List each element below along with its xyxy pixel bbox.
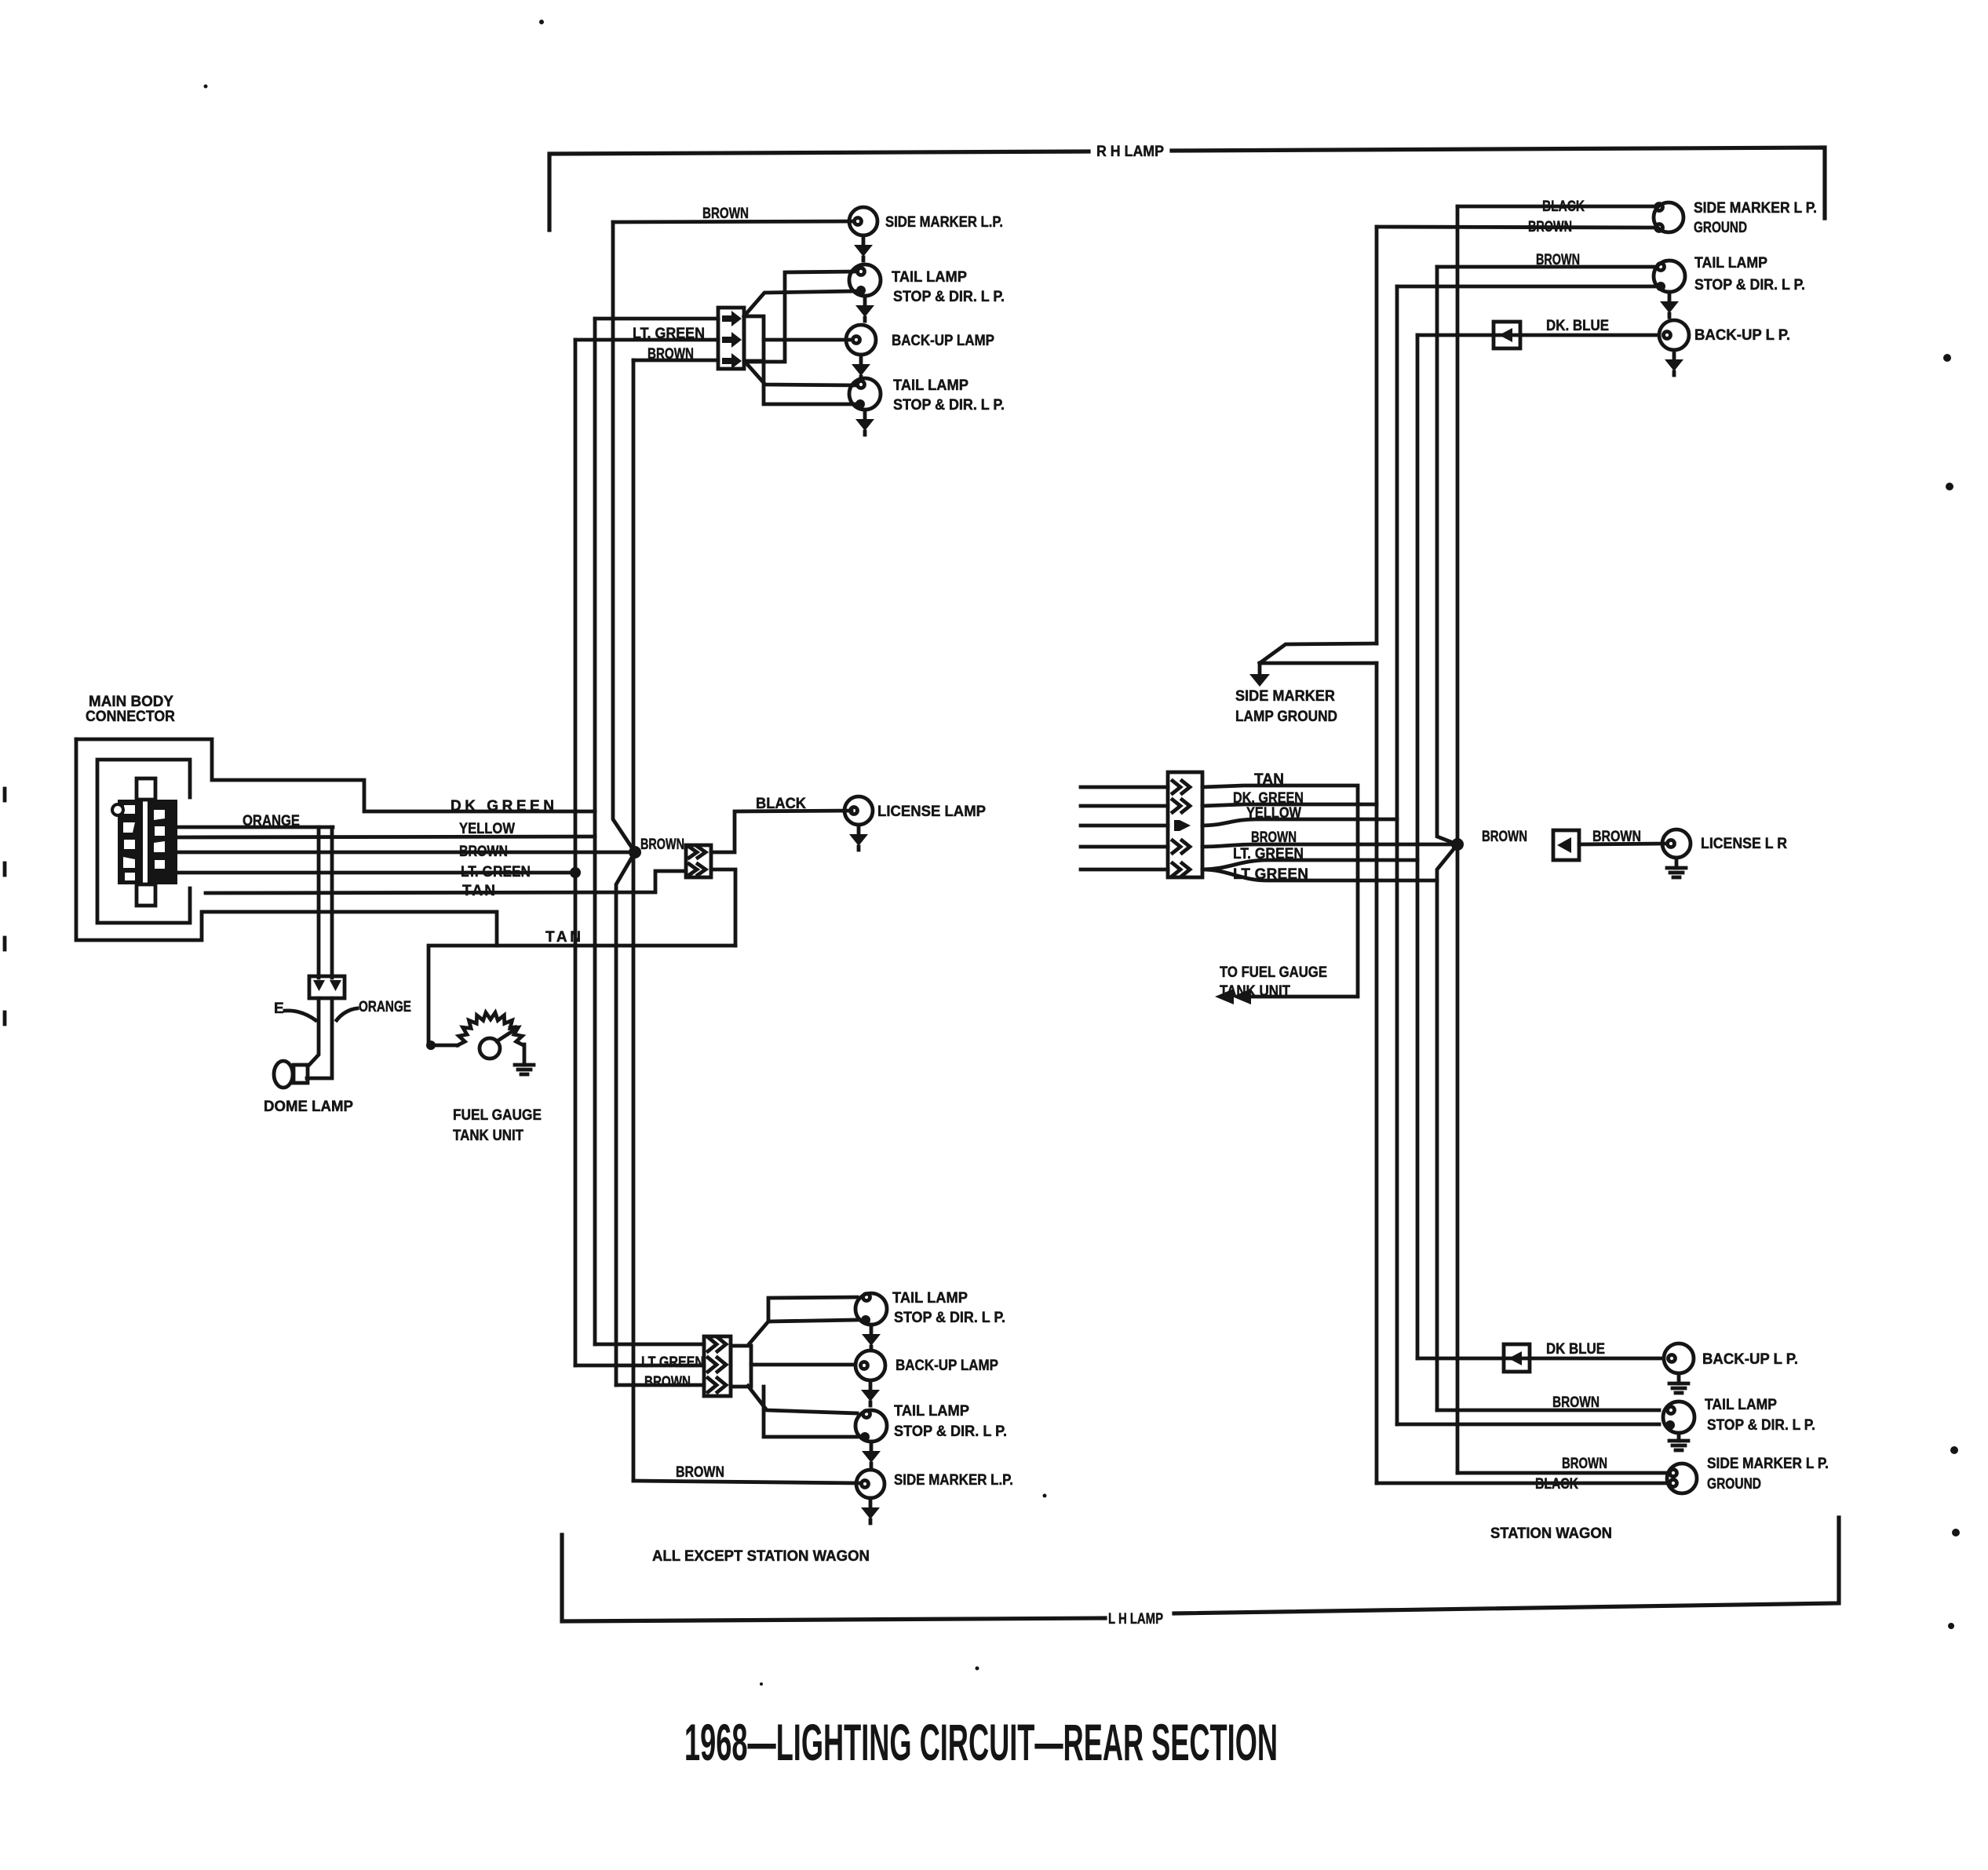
svg-text:TAIL LAMP: TAIL LAMP [1694,255,1767,272]
svg-text:TAIL LAMP: TAIL LAMP [893,377,968,394]
svg-text:L H LAMP: L H LAMP [1108,1611,1163,1628]
svg-text:LICENSE L R: LICENSE L R [1701,836,1787,852]
svg-text:GROUND: GROUND [1707,1476,1761,1493]
svg-text:SIDE MARKER L P.: SIDE MARKER L P. [1694,200,1817,217]
svg-text:BROWN: BROWN [702,206,749,222]
svg-text:TAN: TAN [545,929,581,946]
svg-text:ALL EXCEPT STATION WAGON: ALL EXCEPT STATION WAGON [652,1548,870,1565]
svg-text:BROWN: BROWN [1536,252,1580,268]
svg-text:LT GREEN: LT GREEN [641,1354,704,1371]
svg-text:LT. GREEN: LT. GREEN [1233,846,1304,862]
svg-text:TAIL LAMP: TAIL LAMP [1705,1397,1777,1413]
svg-text:BLACK: BLACK [1535,1476,1578,1493]
svg-text:SIDE MARKER L.P.: SIDE MARKER L.P. [894,1472,1013,1489]
svg-text:DOME LAMP: DOME LAMP [264,1099,353,1115]
svg-text:STOP & DIR. L P.: STOP & DIR. L P. [1694,277,1805,293]
svg-text:STOP & DIR. L P.: STOP & DIR. L P. [893,397,1005,414]
svg-text:BROWN: BROWN [1562,1456,1607,1472]
svg-text:BROWN: BROWN [1528,219,1572,235]
svg-text:TAIL LAMP: TAIL LAMP [892,1290,968,1307]
svg-text:BROWN: BROWN [647,346,694,363]
svg-text:GROUND: GROUND [1694,220,1747,236]
svg-text:LT. GREEN: LT. GREEN [633,326,705,342]
svg-text:STOP & DIR. L P.: STOP & DIR. L P. [893,289,1005,305]
svg-text:E: E [274,1001,284,1017]
svg-text:TANK UNIT: TANK UNIT [1220,983,1290,1000]
svg-text:TO FUEL GAUGE: TO FUEL GAUGE [1220,964,1327,981]
svg-text:BLACK: BLACK [1542,199,1585,215]
svg-text:TAN: TAN [1254,771,1284,788]
svg-text:BROWN: BROWN [676,1464,724,1481]
svg-text:YELLOW: YELLOW [1246,805,1301,822]
svg-text:BROWN: BROWN [644,1374,691,1391]
svg-text:CONNECTOR: CONNECTOR [86,709,175,725]
svg-text:TANK UNIT: TANK UNIT [453,1128,523,1144]
svg-text:BACK-UP L P.: BACK-UP L P. [1694,327,1790,344]
svg-text:LT GREEN: LT GREEN [1233,866,1308,883]
svg-text:BACK-UP LAMP: BACK-UP LAMP [892,333,994,349]
svg-text:DK. GREEN: DK. GREEN [1233,790,1304,807]
svg-text:BROWN: BROWN [1552,1394,1600,1411]
svg-text:ORANGE: ORANGE [359,999,411,1015]
svg-text:SIDE MARKER L P.: SIDE MARKER L P. [1707,1456,1829,1472]
svg-text:BROWN: BROWN [640,837,684,853]
svg-text:LICENSE LAMP: LICENSE LAMP [877,804,986,820]
svg-text:1968—LIGHTING CIRCUIT—REAR SEC: 1968—LIGHTING CIRCUIT—REAR SECTION [684,1713,1278,1771]
svg-text:STOP & DIR. L P.: STOP & DIR. L P. [1707,1417,1815,1434]
svg-text:BLACK: BLACK [756,796,806,812]
svg-text:DK GREEN: DK GREEN [450,798,554,815]
svg-text:BROWN: BROWN [1251,829,1297,846]
svg-text:BROWN: BROWN [1482,829,1527,845]
svg-text:SIDE MARKER L.P.: SIDE MARKER L.P. [885,214,1003,231]
svg-text:BACK-UP L P.: BACK-UP L P. [1702,1351,1798,1368]
svg-text:FUEL GAUGE: FUEL GAUGE [453,1107,542,1124]
svg-text:R H LAMP: R H LAMP [1096,144,1164,160]
svg-text:STOP & DIR. L P.: STOP & DIR. L P. [894,1310,1005,1326]
svg-text:YELLOW: YELLOW [459,821,515,837]
svg-text:LAMP GROUND: LAMP GROUND [1235,709,1337,725]
svg-text:MAIN BODY: MAIN BODY [89,694,173,710]
svg-text:TAIL LAMP: TAIL LAMP [892,269,967,286]
svg-text:TAIL LAMP: TAIL LAMP [894,1403,969,1420]
svg-text:LT. GREEN: LT. GREEN [461,864,531,880]
svg-text:BROWN: BROWN [459,844,508,860]
svg-text:DK BLUE: DK BLUE [1546,1341,1605,1358]
svg-text:STATION WAGON: STATION WAGON [1490,1526,1612,1542]
svg-text:DK. BLUE: DK. BLUE [1546,318,1609,334]
svg-text:ORANGE: ORANGE [243,813,300,829]
svg-text:BACK-UP LAMP: BACK-UP LAMP [896,1358,998,1374]
svg-text:STOP & DIR. L P.: STOP & DIR. L P. [894,1423,1007,1440]
svg-text:TAN: TAN [462,883,495,899]
svg-text:SIDE MARKER: SIDE MARKER [1235,688,1335,705]
